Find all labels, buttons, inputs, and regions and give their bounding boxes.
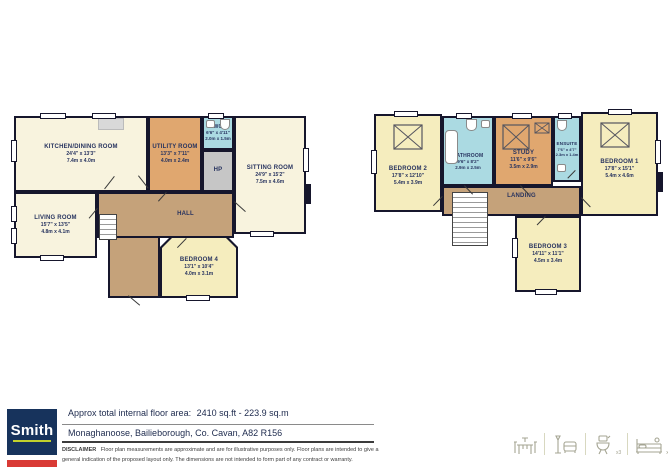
window-marker: [512, 113, 532, 119]
window-marker: [456, 113, 472, 119]
room-hall: HALL: [97, 192, 234, 238]
floorplan-page: KITCHEN/DINING ROOM 24'4" x 13'3" 7.4m x…: [0, 0, 668, 471]
room-utility: UTILITY ROOM 13'3" x 7'11" 4.0m x 2.4m: [148, 116, 202, 192]
window-marker: [371, 150, 377, 174]
smith-logo: Smith: [7, 409, 57, 455]
room-label: BEDROOM 4 13'1" x 10'4" 4.0m x 3.1m: [180, 257, 218, 278]
staircase-ground: [99, 214, 117, 240]
window-marker: [40, 113, 66, 119]
chimney-bump: [304, 184, 311, 204]
chimney-bump: [656, 172, 663, 192]
chimney-breast: [98, 118, 124, 130]
disclaimer-label: DISCLAIMER: [62, 447, 96, 453]
room-count-icons: x3 x4: [512, 432, 668, 456]
divider-line: [62, 424, 374, 425]
room-living: LIVING ROOM 15'7" x 13'5" 4.8m x 4.1m: [14, 192, 97, 258]
window-marker: [394, 111, 418, 117]
roof-window-icon: [600, 122, 630, 148]
toilet-icon: [220, 119, 230, 130]
room-label: ENSUITE 7'6" x 4'7" 2.3m x 1.4m: [556, 141, 579, 157]
room-label: BEDROOM 3 14'11" x 11'1" 4.5m x 3.4m: [529, 244, 567, 265]
hall-entrance: [108, 236, 160, 298]
room-label: LANDING: [507, 193, 536, 201]
floor-area-label: Approx total internal floor area:: [68, 408, 191, 418]
staircase-first: [452, 192, 488, 246]
window-marker: [186, 295, 210, 301]
window-marker: [558, 113, 572, 119]
sink-icon: [557, 164, 566, 172]
roof-window-icon: [502, 124, 530, 150]
room-label: LIVING ROOM 15'7" x 13'5" 4.8m x 4.1m: [34, 215, 77, 236]
room-label: HP: [214, 167, 223, 175]
address-text: Monaghanoose, Bailieborough, Co. Cavan, …: [68, 428, 282, 438]
room-hotpress: HP: [202, 150, 234, 192]
floor-area-text: Approx total internal floor area: 2410 s…: [68, 408, 289, 418]
room-bedroom4-floor: BEDROOM 4 13'1" x 10'4" 4.0m x 3.1m: [162, 238, 236, 296]
room-label: BEDROOM 2 17'8" x 12'10" 5.4m x 3.9m: [389, 166, 427, 187]
room-label: HALL: [177, 211, 194, 219]
room-label: STUDY 11'6" x 9'6" 3.5m x 2.9m: [509, 150, 537, 171]
room-kitchen-dining: KITCHEN/DINING ROOM 24'4" x 13'3" 7.4m x…: [14, 116, 148, 192]
window-marker: [40, 255, 64, 261]
icon-divider: [544, 433, 545, 455]
window-marker: [11, 206, 17, 222]
window-marker: [250, 231, 274, 237]
window-marker: [11, 140, 17, 162]
window-marker: [655, 140, 661, 164]
room-sitting: SITTING ROOM 24'9" x 15'2" 7.5m x 4.6m: [234, 116, 306, 234]
bath-icon: [445, 130, 458, 164]
window-marker: [535, 289, 557, 295]
bathroom-count-icon: x3: [592, 434, 621, 456]
room-bedroom4: BEDROOM 4 13'1" x 10'4" 4.0m x 3.1m: [160, 236, 238, 298]
bedroom-count-icon: x4: [634, 436, 668, 456]
logo-red-bar: [7, 460, 57, 467]
room-label: UTILITY ROOM 13'3" x 7'11" 4.0m x 2.4m: [152, 144, 197, 165]
roof-window-icon: [534, 122, 550, 134]
sink-icon: [206, 120, 215, 128]
room-label: SITTING ROOM 24'9" x 15'2" 7.5m x 4.6m: [247, 165, 293, 186]
smith-logo-text: Smith: [11, 422, 54, 439]
icon-divider: [627, 433, 628, 455]
room-label: KITCHEN/DINING ROOM 24'4" x 13'3" 7.4m x…: [44, 144, 117, 165]
divider-line: [62, 441, 374, 443]
window-marker: [512, 238, 518, 258]
toilet-icon: [557, 120, 567, 131]
floor-area-value: 2410 sq.ft - 223.9 sq.m: [197, 408, 289, 418]
window-marker: [303, 148, 309, 172]
window-marker: [11, 228, 17, 244]
living-room-icon: [551, 434, 579, 456]
room-bedroom3: BEDROOM 3 14'11" x 11'1" 4.5m x 3.4m: [515, 216, 581, 292]
disclaimer-text: DISCLAIMER Floor plan measurements are a…: [62, 446, 380, 466]
window-marker: [608, 109, 632, 115]
bathroom-count: x3: [616, 450, 621, 456]
toilet-icon: [466, 119, 477, 131]
roof-window-icon: [393, 124, 423, 150]
window-marker: [92, 113, 116, 119]
sink-icon: [481, 120, 490, 128]
icon-divider: [585, 433, 586, 455]
logo-underline: [13, 440, 51, 442]
dining-room-icon: [512, 436, 538, 456]
room-label: BEDROOM 1 17'8" x 15'1" 5.4m x 4.6m: [600, 159, 638, 180]
